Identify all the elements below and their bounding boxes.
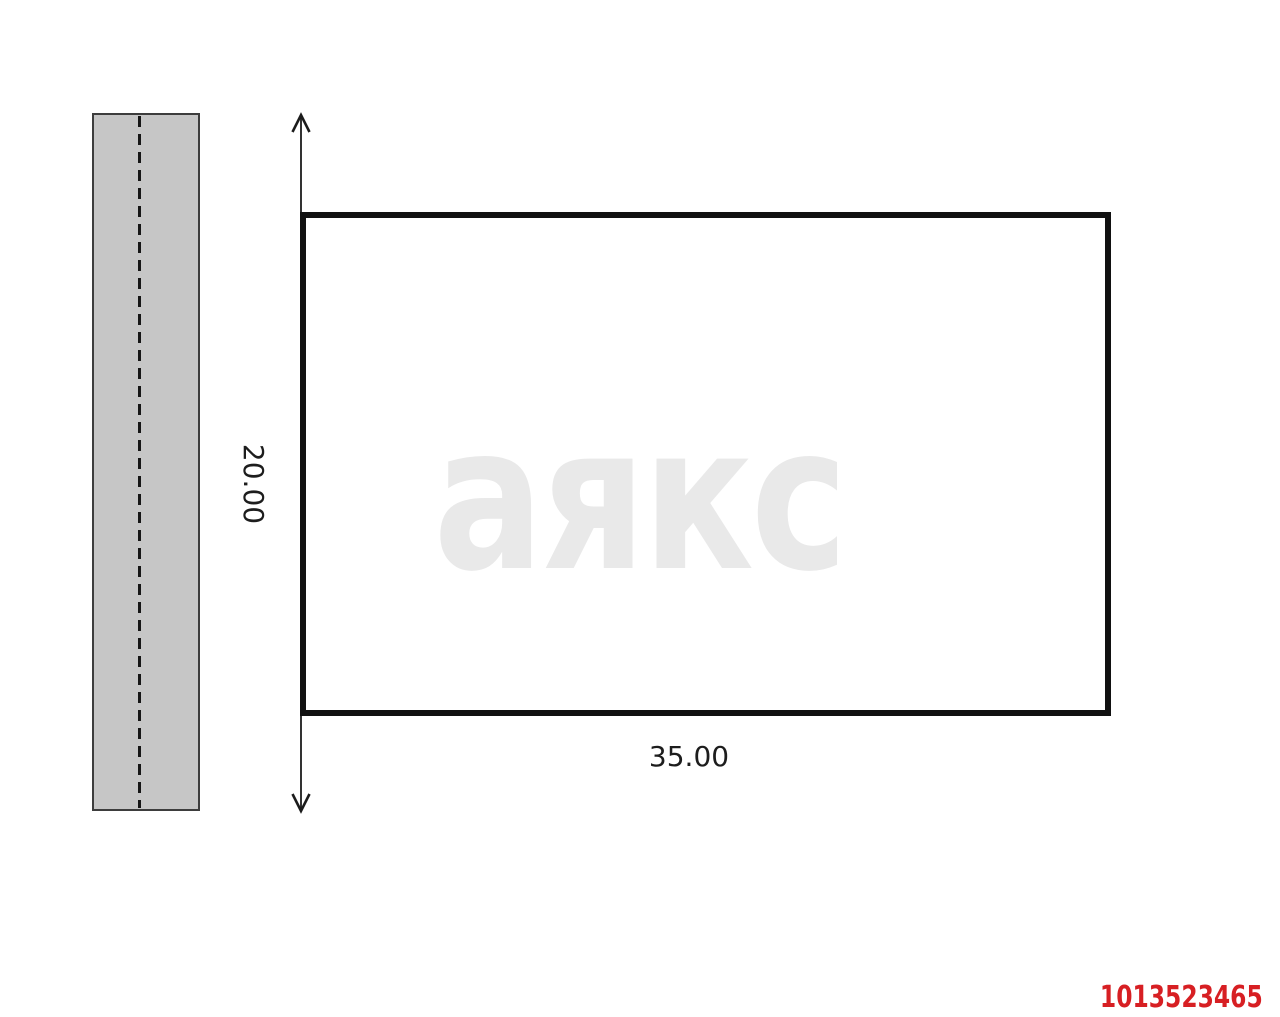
plot-scheme-drawing [0, 0, 1280, 1017]
width-dimension-label: 35.00 [649, 743, 729, 771]
height-dimension-label: 20.00 [239, 444, 267, 524]
listing-id: 1013523465 [1100, 983, 1263, 1013]
plot-scheme-canvas: аякс 20.00 35.00 1013523465 [0, 0, 1280, 1017]
plot-boundary [303, 215, 1108, 713]
road-strip [93, 114, 199, 810]
